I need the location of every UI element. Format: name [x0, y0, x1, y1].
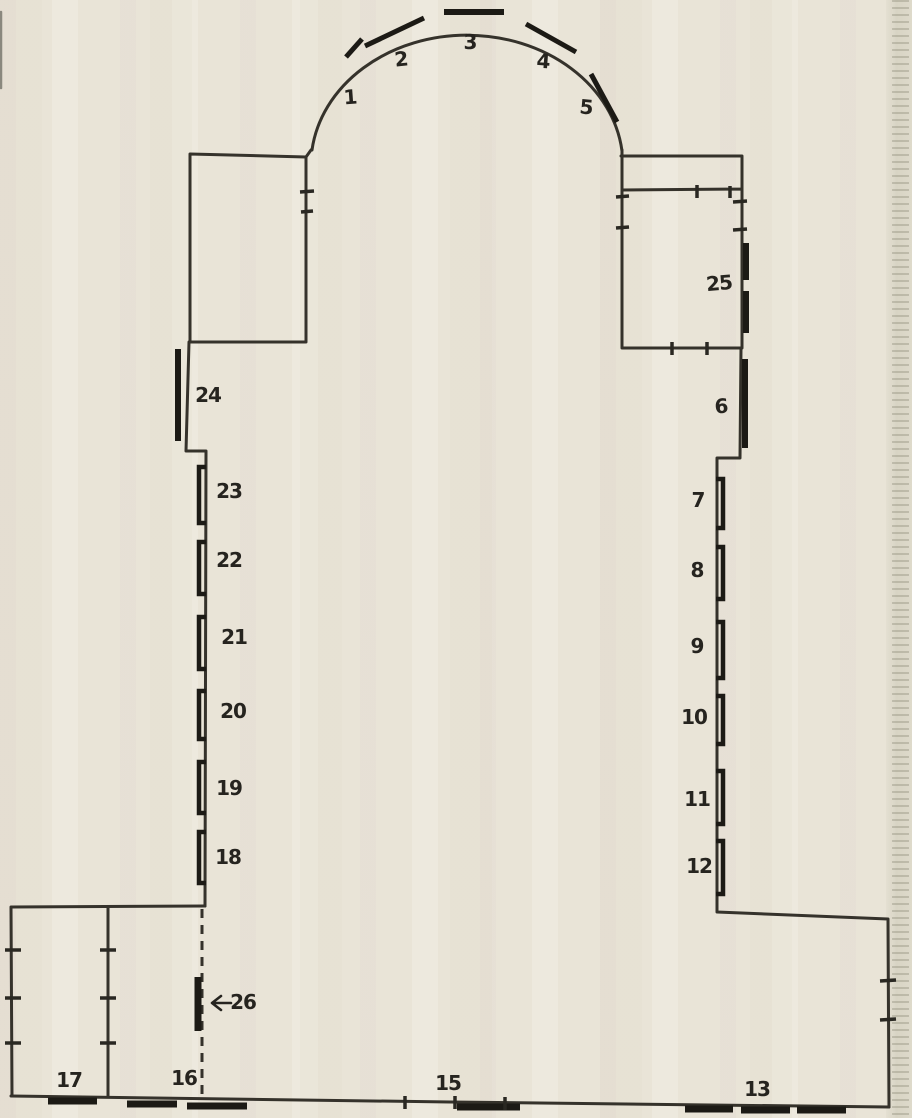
wall-position-mark	[346, 39, 362, 57]
position-label-24: 24	[195, 385, 221, 405]
position-label-2: 2	[394, 48, 409, 69]
wall-tick-mark	[880, 1019, 896, 1020]
position-label-13: 13	[744, 1079, 770, 1099]
position-label-21: 21	[221, 627, 247, 647]
position-label-17: 17	[56, 1070, 82, 1090]
wall-position-mark	[591, 74, 617, 122]
position-label-1: 1	[343, 87, 357, 108]
position-label-19: 19	[216, 778, 242, 798]
position-label-3: 3	[464, 32, 477, 52]
wall-outlines	[1, 12, 889, 1107]
wall-tick-mark	[733, 201, 747, 202]
position-label-5: 5	[579, 96, 594, 117]
right-nave-wall	[717, 348, 889, 1107]
right-chamber-wall	[621, 150, 742, 348]
wall-tick-mark	[616, 227, 629, 228]
position-label-18: 18	[215, 847, 241, 867]
scanned-floorplan-page: 1234567891011121315161718192021222324252…	[0, 0, 912, 1118]
left-chamber-wall	[190, 150, 311, 342]
floorplan-drawing	[0, 0, 912, 1118]
position-label-10: 10	[681, 707, 707, 727]
wall-tick-mark	[616, 196, 629, 197]
arrow-26-icon	[212, 996, 231, 1010]
wall-tick-mark	[300, 191, 314, 192]
position-label-7: 7	[692, 490, 705, 510]
position-label-22: 22	[216, 550, 242, 570]
position-label-6: 6	[714, 396, 728, 417]
wall-tick-mark	[301, 211, 313, 212]
position-label-8: 8	[691, 560, 704, 580]
position-label-12: 12	[686, 856, 712, 876]
position-label-25: 25	[705, 272, 732, 294]
position-label-23: 23	[216, 481, 242, 501]
position-marks	[5, 12, 896, 1110]
left-nave-wall	[186, 342, 206, 906]
position-label-4: 4	[536, 51, 550, 72]
position-label-9: 9	[691, 636, 704, 656]
position-label-15: 15	[435, 1073, 461, 1093]
wall-tick-mark	[733, 229, 747, 230]
position-label-16: 16	[171, 1068, 197, 1088]
wall-tick-mark	[880, 980, 896, 981]
position-label-26: 26	[230, 992, 256, 1012]
position-label-20: 20	[220, 701, 246, 721]
position-label-11: 11	[684, 789, 710, 809]
